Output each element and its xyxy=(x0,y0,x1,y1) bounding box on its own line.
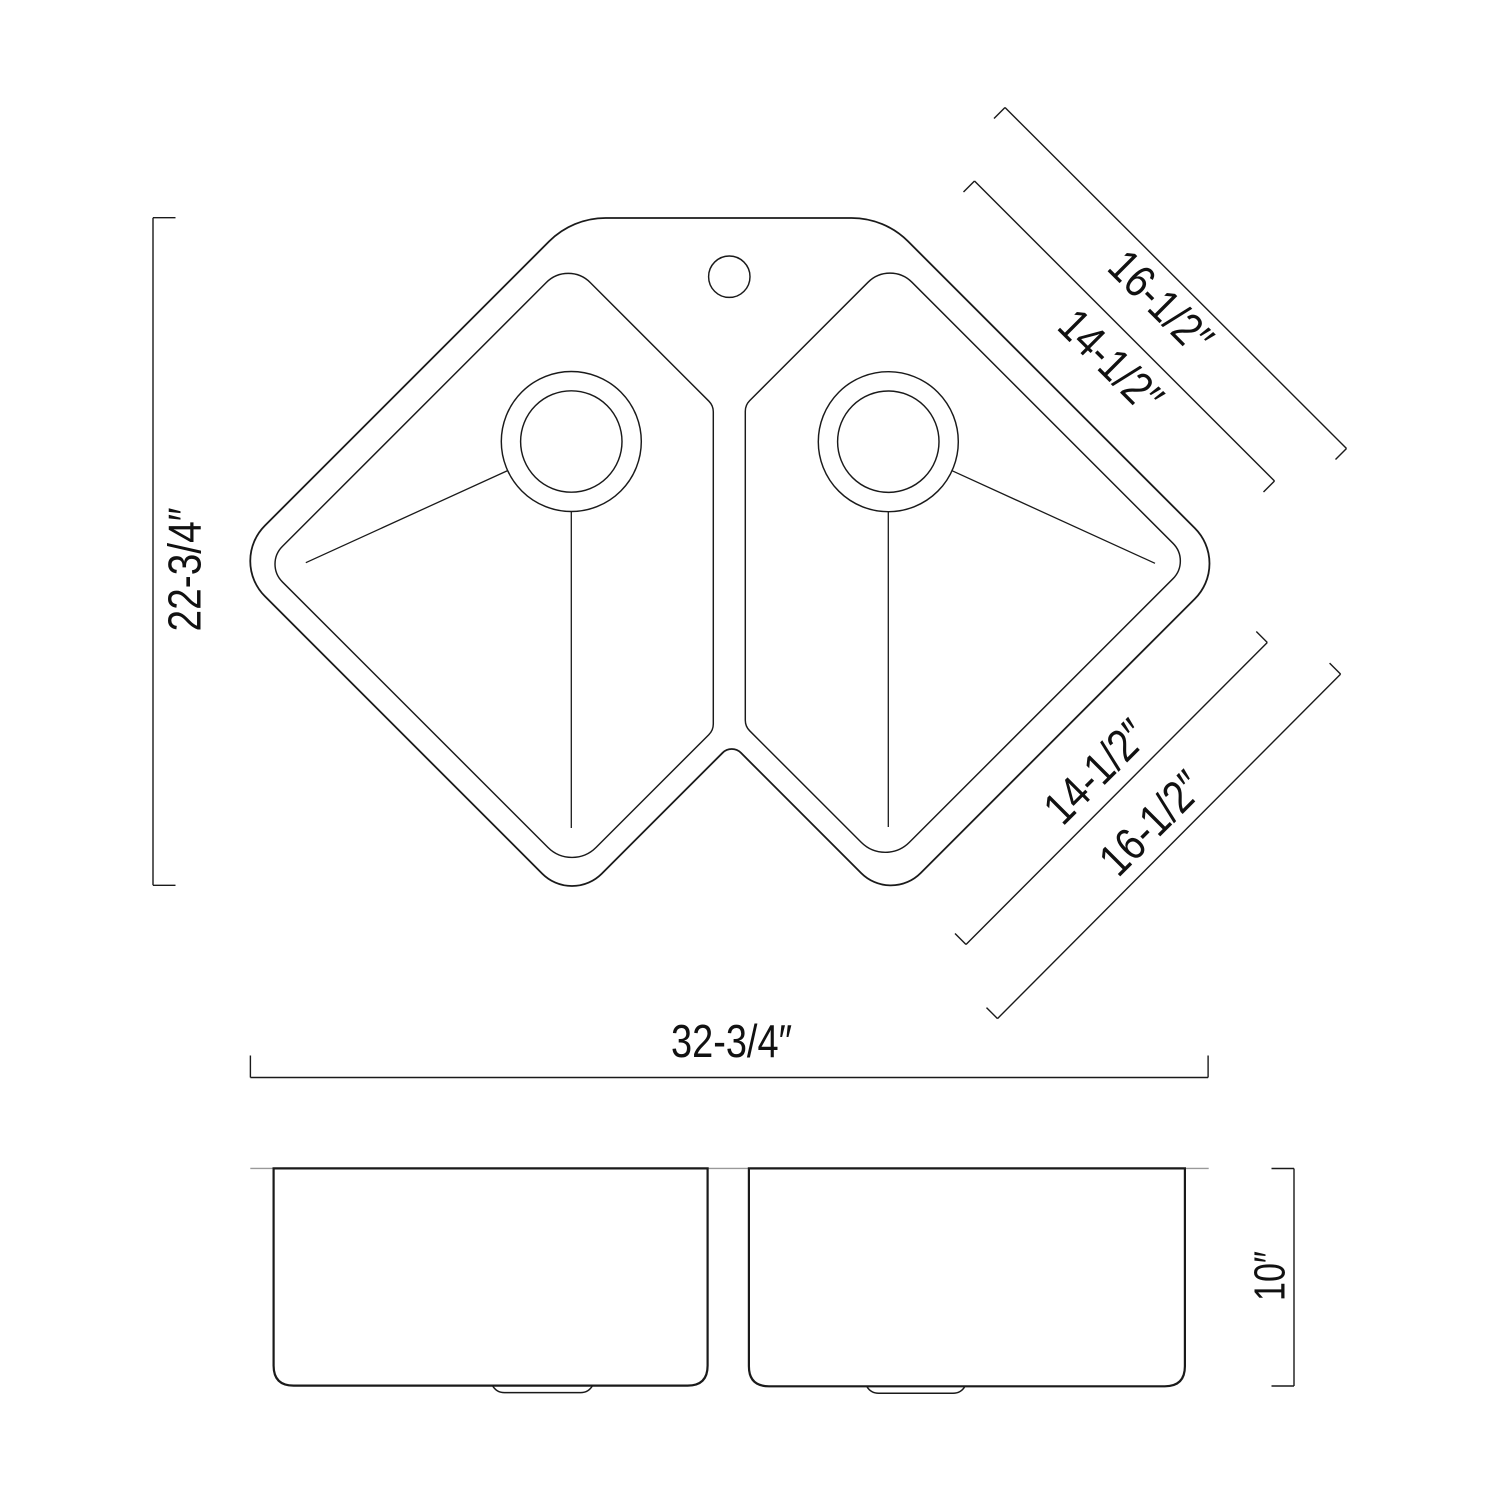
svg-text:10″: 10″ xyxy=(1246,1251,1295,1301)
svg-text:22-3/4″: 22-3/4″ xyxy=(159,508,211,632)
svg-text:32-3/4″: 32-3/4″ xyxy=(671,1015,792,1067)
